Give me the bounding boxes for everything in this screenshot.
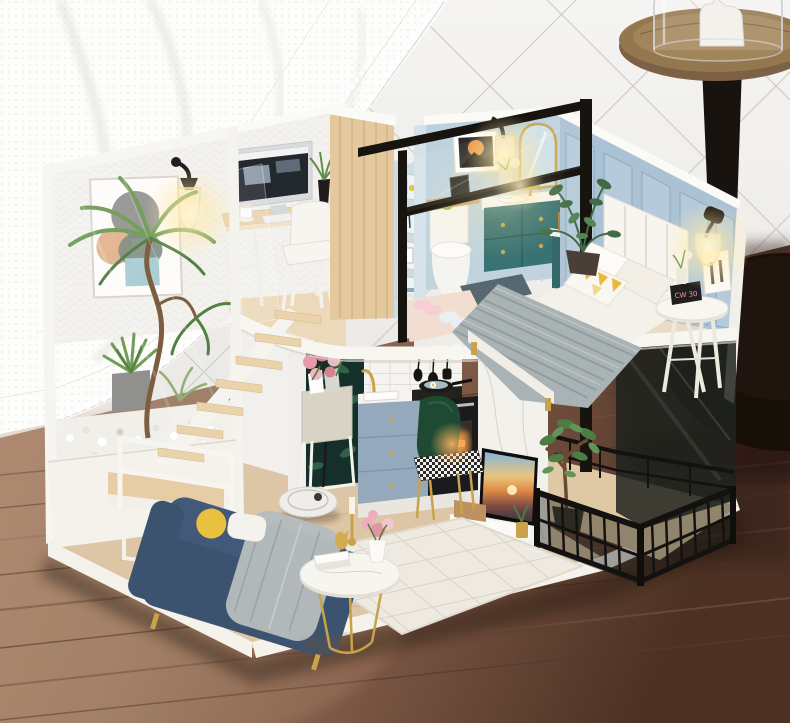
scene-illustration: CW 30 [0,0,790,723]
kitchen-sink [364,391,398,401]
wardrobe [328,104,396,320]
frame-left-post [398,150,407,343]
television [479,448,538,526]
photo-of-miniature-dollhouse: Miniature DIY dollhouse diorama of a mod… [0,0,790,723]
kitchen-cabinets [358,400,428,506]
